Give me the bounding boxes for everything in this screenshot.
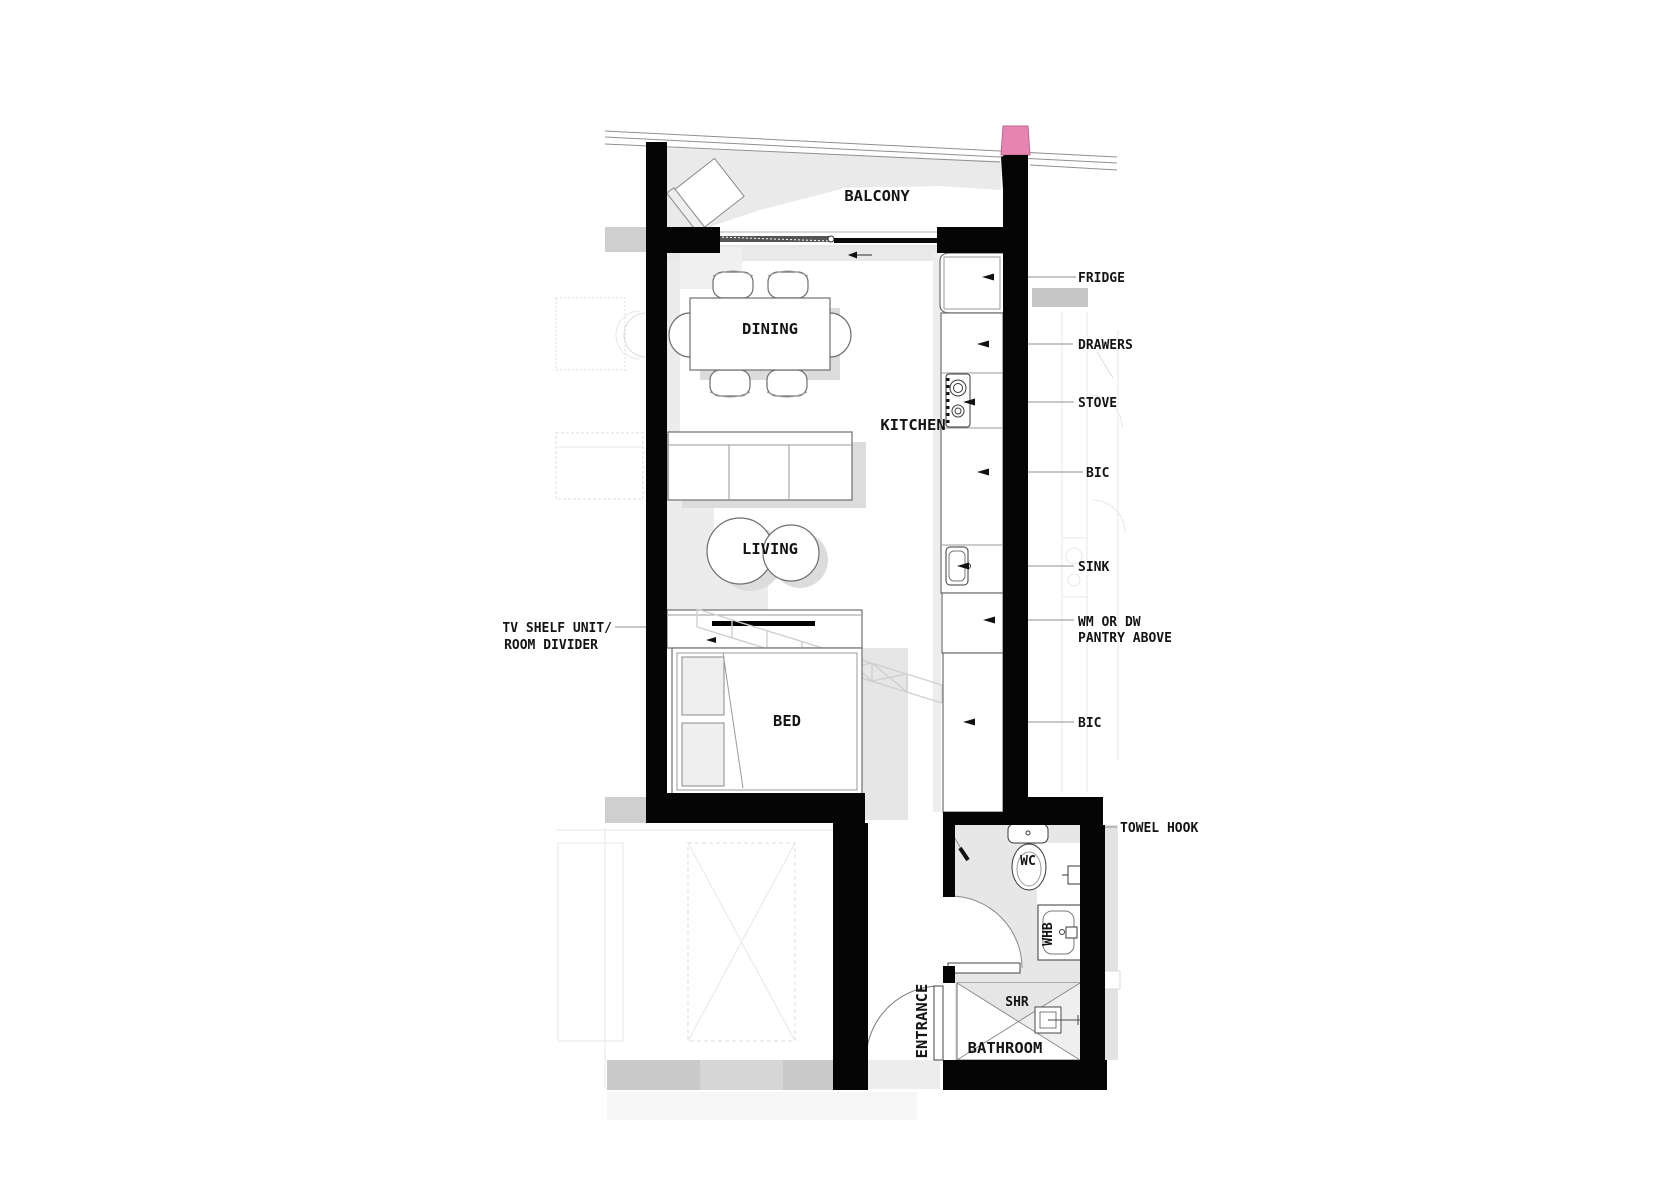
fridge [940, 253, 1003, 313]
bic-upper-label: BIC [1086, 466, 1109, 481]
bed-label: BED [773, 712, 801, 730]
entrance-door [866, 986, 943, 1060]
wall-bed-south [646, 793, 865, 823]
wall-bathroom-bottom [943, 1060, 1107, 1090]
stove-label: STOVE [1078, 396, 1117, 411]
tv-screen [712, 621, 815, 626]
bathroom-label: BATHROOM [968, 1039, 1043, 1057]
drawers-label: DRAWERS [1078, 338, 1133, 353]
pink-highlight-marker [1001, 126, 1030, 155]
sink-label: SINK [1078, 560, 1109, 575]
dining-chair [713, 271, 753, 298]
toilet-roll-holder [1068, 866, 1081, 884]
wall-left [646, 142, 667, 793]
entrance-door-leaf [934, 986, 943, 1060]
dining-chair [768, 271, 808, 298]
tv-shelf-unit [667, 610, 862, 648]
wm-dw-label-line2: PANTRY ABOVE [1078, 631, 1172, 646]
entrance-label: ENTRANCE [913, 984, 931, 1059]
tv-shelf-label-line2: ROOM DIVIDER [504, 638, 598, 653]
kitchen-label: KITCHEN [880, 416, 945, 434]
sofa [668, 432, 852, 500]
bed [672, 648, 862, 795]
wall-bathroom-left-upper [943, 823, 955, 897]
wall-bathroom-left-stub [943, 966, 955, 983]
bathroom-fixtures [947, 824, 1082, 1060]
floor-plan-drawing: BALCONY DINING KITCHEN LIVING BED BATHRO… [0, 0, 1680, 1199]
wall-bathroom-top [1003, 797, 1103, 825]
wall-bathroom-right [1080, 825, 1105, 1060]
towel-hook-label: TOWEL HOOK [1120, 821, 1198, 836]
bic-lower-label: BIC [1078, 716, 1101, 731]
wall-corridor [833, 823, 868, 1090]
fridge-label: FRIDGE [1078, 271, 1125, 286]
wc-label: WC [1020, 854, 1036, 869]
pillow [682, 723, 724, 786]
wall-balcony-left-flange [666, 227, 720, 253]
balcony-area [605, 126, 1117, 234]
wm-dw-label-line1: WM OR DW [1078, 615, 1141, 630]
built-in-cupboard [943, 653, 1003, 812]
dining-chair [767, 370, 807, 397]
shr-label: SHR [1005, 995, 1029, 1010]
dining-label: DINING [742, 320, 798, 338]
tv-shelf-label-line1: TV SHELF UNIT/ [502, 621, 612, 636]
dining-chair [710, 370, 750, 397]
stove [946, 374, 970, 427]
kitchen-fixtures [940, 253, 1003, 812]
whb-label: WHB [1041, 922, 1056, 946]
wall-right [1001, 155, 1028, 817]
wall-balcony-right-flange [937, 227, 1005, 253]
balcony-sliding-door [718, 232, 938, 246]
living-label: LIVING [742, 540, 798, 558]
floor-plan-page: BALCONY DINING KITCHEN LIVING BED BATHRO… [0, 0, 1680, 1199]
balcony-label: BALCONY [844, 187, 910, 205]
bathroom-door-leaf [948, 963, 1020, 973]
pillow [682, 657, 724, 715]
dining-chair [830, 313, 851, 357]
